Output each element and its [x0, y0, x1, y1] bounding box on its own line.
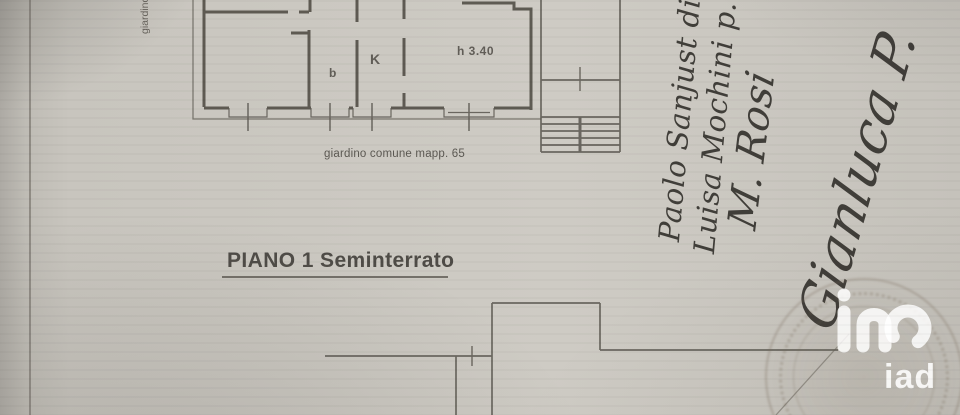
floor-title: PIANO 1 Seminterrato [227, 249, 454, 273]
margin-note-vertical: giardino [139, 0, 151, 34]
scanned-floorplan-page: b K h 3.40 giardino comune mapp. 65 giar… [0, 0, 960, 415]
ceiling-height-label: h 3.40 [457, 44, 494, 58]
floor-title-underline [222, 276, 448, 278]
room-label-kitchen: K [370, 51, 381, 67]
iad-logo-text: iad [884, 358, 936, 397]
garden-caption: giardino comune mapp. 65 [324, 148, 465, 160]
iad-watermark: iad [834, 286, 954, 398]
iad-logo-icon [834, 286, 934, 356]
room-label-b: b [329, 66, 337, 80]
